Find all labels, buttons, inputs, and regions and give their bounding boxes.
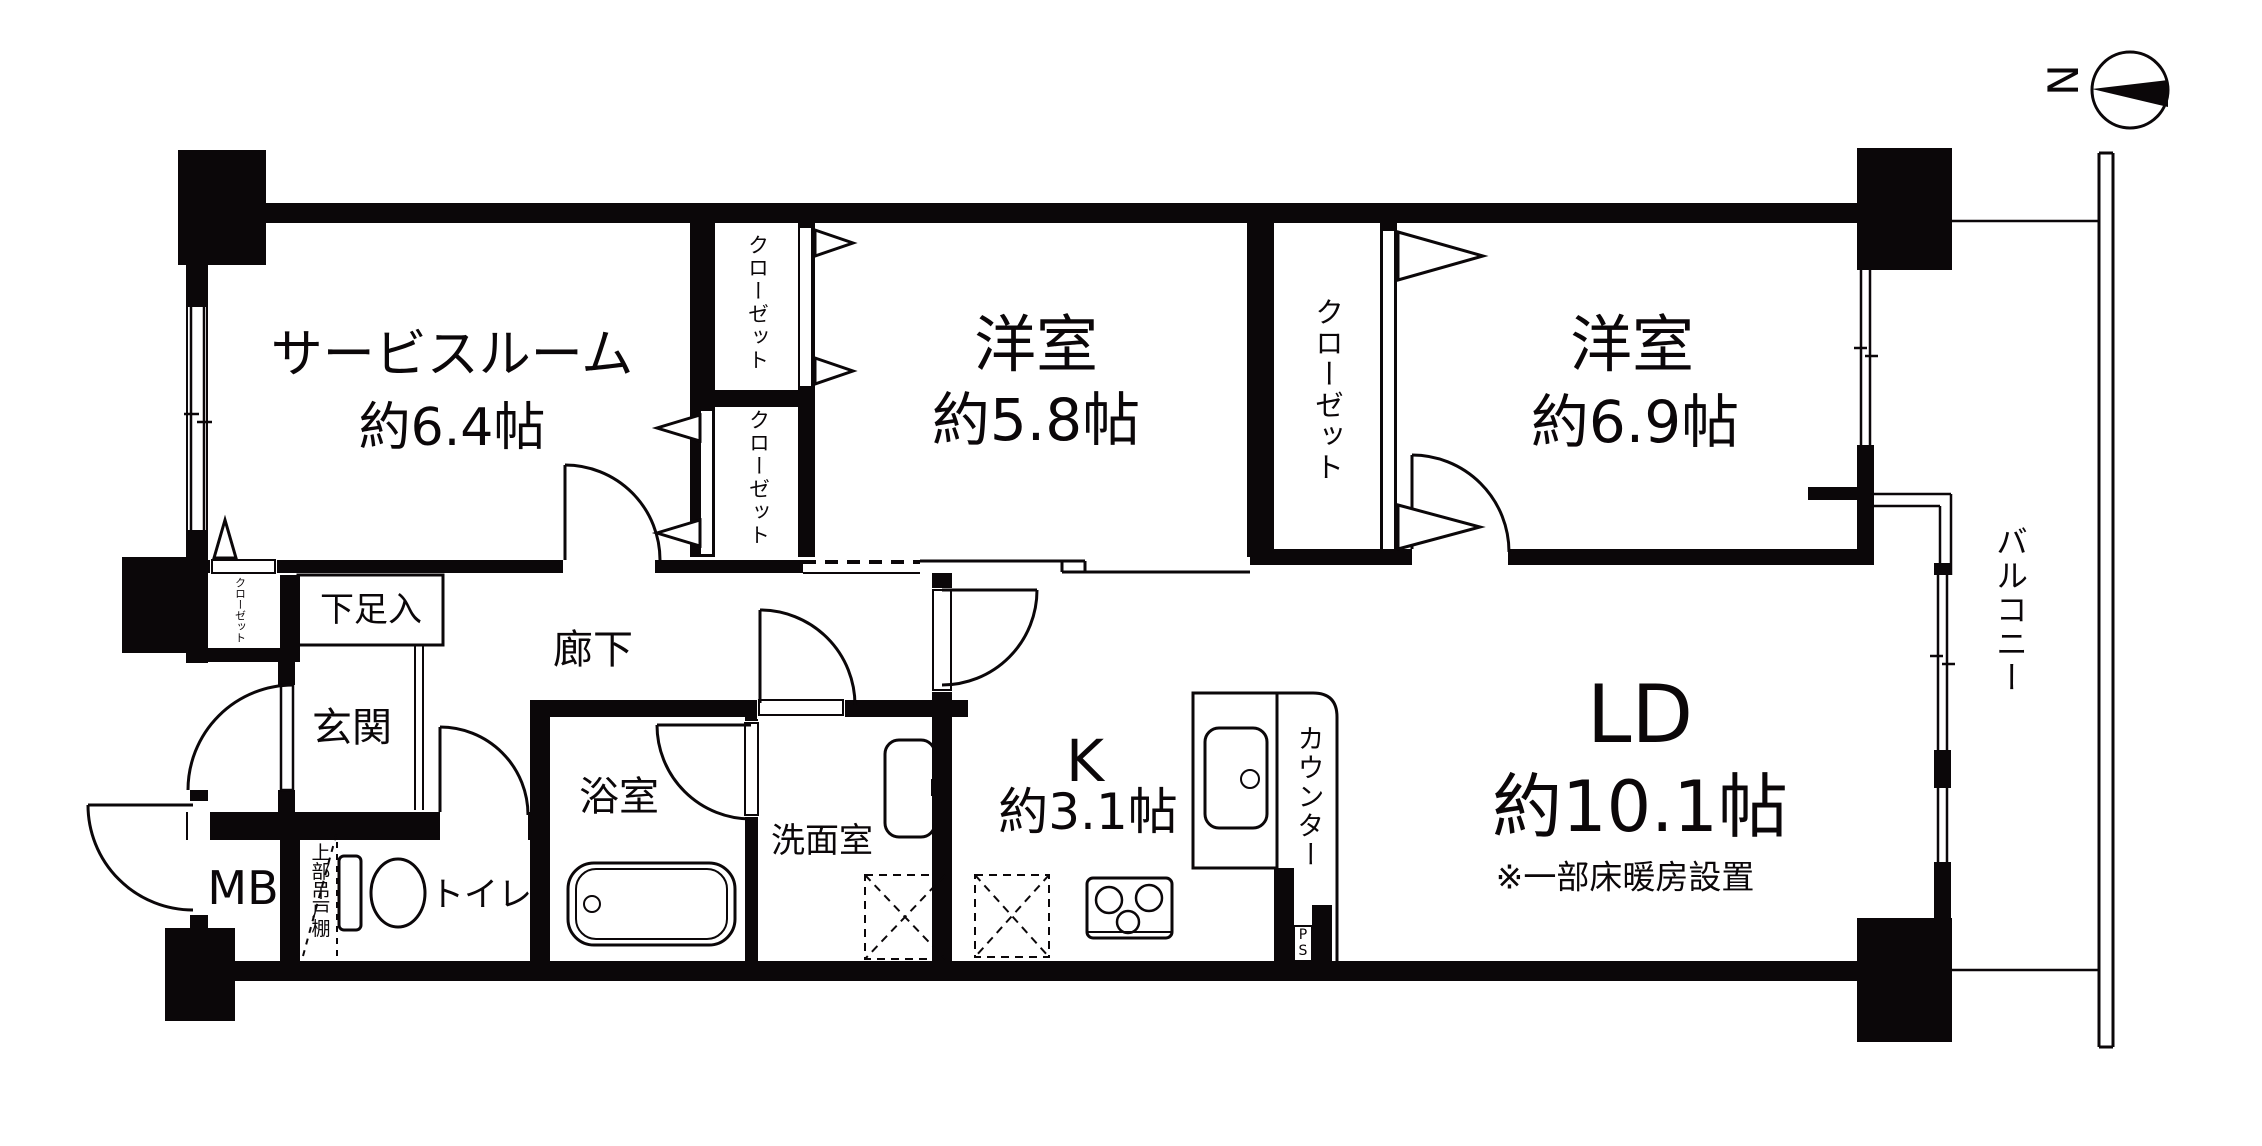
closet-a-bottom-label: クローゼット xyxy=(748,409,769,547)
bedroom1-name: 洋室 xyxy=(974,314,1098,376)
closet-b-label: クローゼット xyxy=(1313,297,1342,483)
balcony-label: バルコニー xyxy=(1994,525,2026,695)
upper-cabinet-label: 上部吊戸棚 xyxy=(310,843,329,938)
washbasin-icon xyxy=(885,740,944,837)
bathtub-icon xyxy=(568,863,735,945)
floor-plan-drawing xyxy=(0,0,2262,1146)
kitchen-sink-icon xyxy=(1205,728,1267,828)
toilet-label: トイレ xyxy=(430,878,532,912)
closetA-bottom-door-icon xyxy=(657,410,713,555)
wall-stub-step xyxy=(1808,487,1874,500)
sliding-door-bedroom1-kitchen-icon xyxy=(920,561,1250,572)
opening-service-door xyxy=(563,558,655,575)
wall-kitchen-ps-left xyxy=(1274,868,1294,961)
ld-note: ※一部床暖房設置 xyxy=(1496,861,1755,894)
washroom-door-icon xyxy=(759,610,855,715)
wall-divider-left xyxy=(186,560,803,573)
compass-icon xyxy=(2092,52,2168,128)
wall-right-bedroom2 xyxy=(1857,445,1874,565)
washroom-label: 洗面室 xyxy=(771,824,873,858)
wall-right-ld-pier xyxy=(1934,750,1951,788)
wall-right-ld-lower xyxy=(1934,862,1951,922)
opening-toilet-door xyxy=(440,810,528,842)
wall-entry-door-stub-bottom xyxy=(278,790,295,812)
balcony-railing-icon xyxy=(1952,153,2113,1047)
closetB-door-icon xyxy=(1382,230,1483,550)
closet-entry-door-icon xyxy=(212,520,275,573)
service-room-size: 約6.4帖 xyxy=(359,402,546,454)
wall-entry-door-stub-top xyxy=(278,653,295,685)
bedroom2-name: 洋室 xyxy=(1570,314,1694,376)
wall-kitchen-ps-right xyxy=(1312,905,1332,961)
entrance-door-icon xyxy=(188,685,293,790)
wall-top xyxy=(260,203,1860,223)
toilet-icon xyxy=(339,856,425,930)
entrance-label: 玄関 xyxy=(312,708,392,748)
ld-size: 約10.1帖 xyxy=(1492,772,1788,842)
ld-step-lines xyxy=(1874,494,1951,575)
closetA-top-door-icon xyxy=(799,227,853,387)
pillar-top-right xyxy=(1857,148,1952,270)
wall-bath-top xyxy=(530,700,968,717)
bedroom1-size: 約5.8帖 xyxy=(932,391,1140,449)
kitchen-door-icon xyxy=(933,590,1037,690)
bedroom2-size: 約6.9帖 xyxy=(1531,393,1739,451)
wall-closetB-left xyxy=(1247,223,1274,557)
toilet-door-icon xyxy=(440,727,528,815)
wall-right-ld-top-stub xyxy=(1934,563,1951,575)
pillar-bottom-left xyxy=(165,928,235,1021)
kitchen-name: K xyxy=(1066,732,1104,790)
counter-label: カウンター xyxy=(1295,725,1322,870)
partitions xyxy=(803,561,1250,573)
fridge-space-icon xyxy=(975,875,1049,957)
shoe-cabinet-label: 下足入 xyxy=(320,593,422,627)
service-room-door-icon xyxy=(565,465,660,560)
wall-divider-right xyxy=(1250,549,1874,565)
pillar-bottom-right xyxy=(1857,918,1952,1042)
bathroom-label: 浴室 xyxy=(579,777,659,817)
mb-door-icon xyxy=(88,805,193,910)
floor-plan: サービスルーム 約6.4帖 洋室 約5.8帖 洋室 約6.9帖 LD 約10.1… xyxy=(0,0,2262,1146)
ld-name: LD xyxy=(1587,675,1693,755)
bathroom-door-icon xyxy=(657,723,758,819)
service-room-name: サービスルーム xyxy=(271,329,633,381)
opening-bedroom2-door xyxy=(1412,547,1508,567)
kitchen-size: 約3.1帖 xyxy=(998,787,1178,837)
meter-box-label: MB xyxy=(207,865,278,911)
wall-bottom xyxy=(233,961,1857,981)
wall-closetA-mid xyxy=(690,390,815,407)
pipe-space-label: PS xyxy=(1296,927,1310,959)
closet-a-top-label: クローゼット xyxy=(747,234,768,372)
hallway-label: 廊下 xyxy=(553,630,633,670)
compass-north-label: N xyxy=(2043,64,2085,95)
closet-entry-label: クローゼット xyxy=(235,577,246,643)
wall-mb-toilet xyxy=(280,828,300,961)
stove-icon xyxy=(1087,878,1172,938)
entrance-step-lines xyxy=(415,645,423,810)
